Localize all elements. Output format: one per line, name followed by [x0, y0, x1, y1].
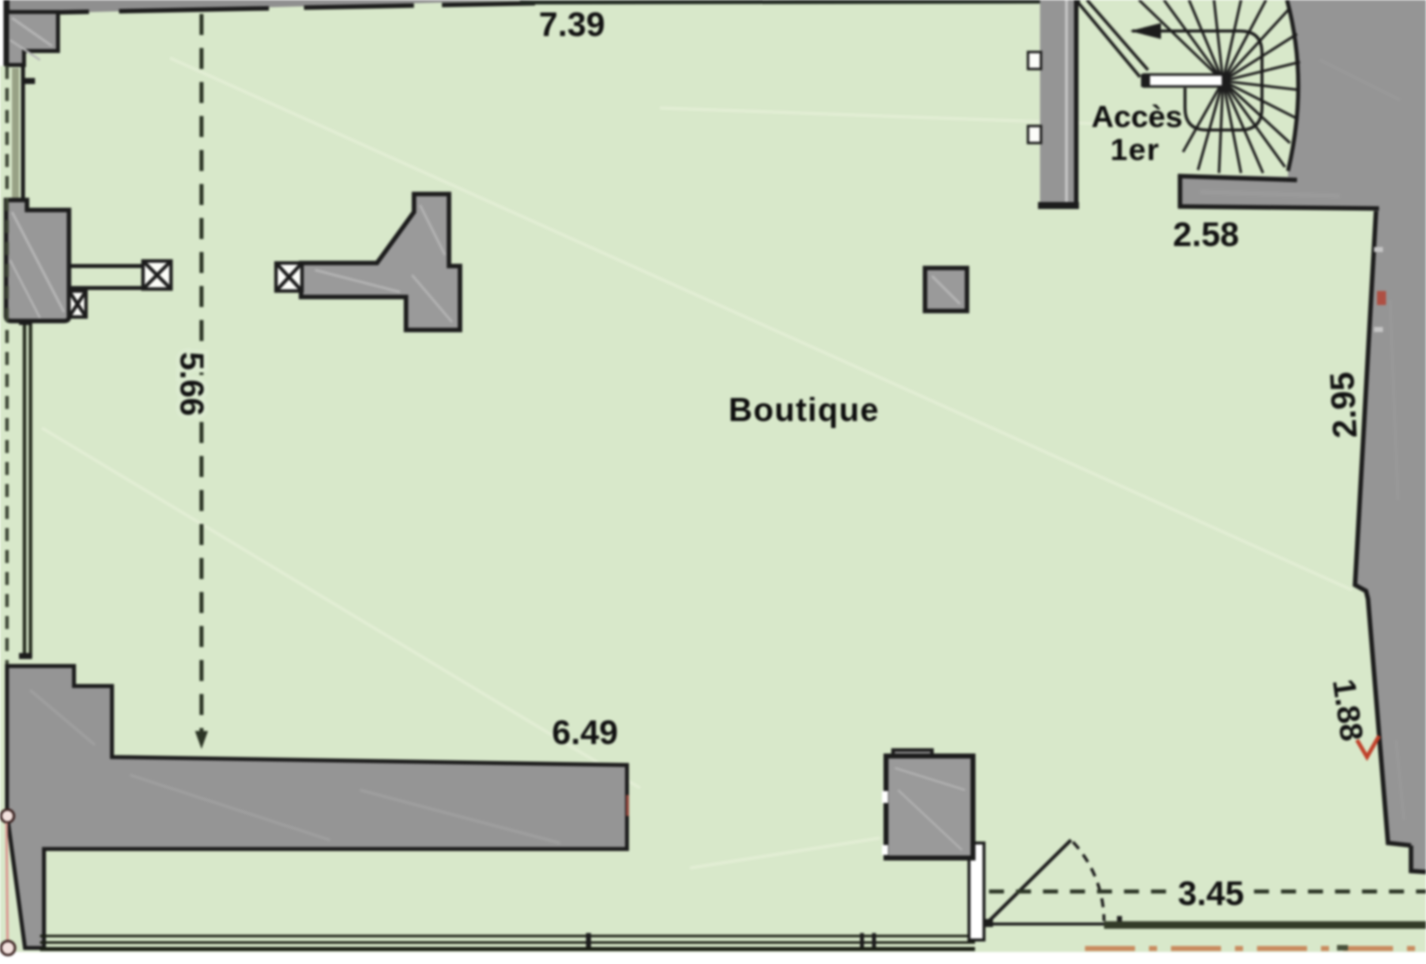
svg-text:2.58: 2.58 [1173, 216, 1239, 254]
svg-text:Accès: Accès [1091, 99, 1182, 134]
svg-text:6.49: 6.49 [552, 714, 618, 752]
svg-text:7.39: 7.39 [539, 6, 605, 44]
svg-text:Boutique: Boutique [729, 391, 880, 428]
svg-text:5.66: 5.66 [174, 352, 211, 416]
svg-text:1er: 1er [1110, 132, 1160, 167]
svg-text:3.45: 3.45 [1178, 875, 1244, 913]
svg-text:2.95: 2.95 [1323, 371, 1364, 439]
